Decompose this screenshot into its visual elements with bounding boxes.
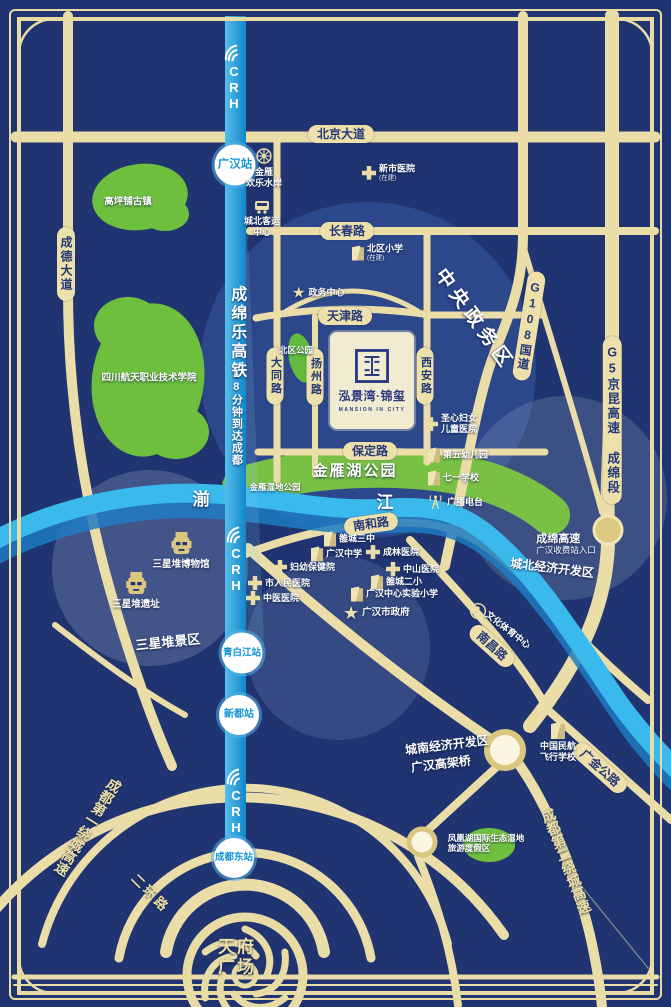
hospital-cross-icon [246, 591, 260, 605]
interchange-a-circle [487, 732, 523, 768]
aerospace-green-shape3 [143, 405, 209, 459]
poi-radio-station: 广播电台 [427, 494, 483, 510]
school-building-icon [324, 532, 336, 547]
school-building-icon [351, 587, 363, 602]
bronze-mask-icon [170, 531, 192, 557]
poi-label: 三星堆遗址 [112, 599, 160, 610]
road-label-tianjin: 天津路 [318, 307, 372, 325]
river-char-jiang: 江 [377, 493, 394, 513]
poi-qiyi-school: 七一学校 [428, 471, 479, 486]
poi-label: 新市医院 [379, 164, 415, 175]
poi-label: 圣心妇女 [441, 413, 477, 424]
antenna-icon [427, 494, 444, 510]
crh-logo-top: CRH [223, 44, 245, 112]
poi-label: 七一学校 [443, 473, 479, 484]
poi-civic-center: ★ 政务中心 [292, 286, 344, 301]
station-chengdudong: 成都东站 [214, 838, 254, 878]
crh-logo-text: CRH [227, 64, 242, 112]
school-building-icon [352, 246, 364, 261]
rail-line-name: 成绵乐高铁 [227, 286, 245, 381]
project-name-en: MANSION IN CITY [339, 407, 406, 413]
poi-label: 中山医院 [403, 564, 439, 575]
hospital-cross-icon [273, 560, 287, 574]
poi-chenglin-hospital: 成林医院 [366, 545, 419, 559]
school-building-icon [551, 722, 565, 739]
bronze-mask-icon [125, 571, 147, 597]
poi-tcm-hospital: 中医医院 [246, 591, 299, 605]
road-label-beijing-avenue: 北京大道 [308, 125, 374, 143]
school-building-icon [428, 448, 440, 463]
seal-logo-icon [354, 348, 390, 384]
crh-waves-icon [225, 768, 247, 786]
poi-label: 广播电台 [447, 497, 483, 508]
star-icon: ★ [292, 286, 305, 301]
project-emblem-card: 泓景湾·锦玺 MANSION IN CITY [330, 332, 414, 429]
map-canvas: 北京大道 长春路 天津路 保定路 南和路 成德大道 大同路 扬州路 西安路 G1… [0, 0, 671, 1007]
poi-label: 飞行学校 [540, 752, 576, 763]
toll-gate-circle [594, 516, 622, 544]
crh-logo-text: CRH [229, 788, 244, 836]
poi-label: 欢乐水岸 [246, 178, 282, 189]
station-qingbaijiang: 青白江站 [222, 633, 263, 674]
aerospace-college-label: 四川航天职业技术学院 [101, 374, 196, 385]
crh-waves-icon [223, 44, 245, 62]
poi-label: 中国民航 [540, 741, 576, 752]
poi-fifth-kindergarten: 第五幼儿园 [428, 448, 488, 463]
hospital-cross-icon [248, 576, 262, 590]
bus-icon [254, 200, 270, 214]
river-char-jian: 湔 [193, 490, 210, 510]
ferris-wheel-icon [255, 147, 273, 165]
frame-corner-tl [19, 19, 54, 54]
hospital-cross-icon [424, 417, 438, 431]
poi-label: 三星堆博物馆 [152, 559, 209, 570]
poi-note: (在建) [367, 255, 403, 263]
phoenix-lake-label: 凤凰湖国际生态湿地 旅游度假区 [448, 834, 525, 854]
gaoping-park-label: 高坪铺古镇 [104, 198, 152, 209]
poi-peoples-hospital: 市人民医院 [248, 576, 310, 590]
poi-label: 广汉市政府 [362, 607, 410, 618]
poi-shengxin-hospital: 圣心妇女 儿童医院 [424, 413, 477, 435]
poi-chengbei-bus-center: 城北客运 中心 [244, 200, 280, 238]
poi-sanxingdui-museum: 三星堆博物馆 [152, 531, 209, 570]
beiqu-park-label: 北区公园 [279, 346, 313, 356]
hospital-cross-icon [362, 166, 376, 180]
toll-entry-label: 成绵高速 广汉收费站入口 [536, 533, 596, 555]
road-label-xian: 西安路 [417, 348, 434, 405]
poi-city-government: ★ 广汉市政府 [343, 604, 410, 622]
tianfu-square-line2: 广场 [218, 957, 256, 977]
poi-maternity-hospital: 妇幼保健院 [273, 560, 335, 574]
tianfu-square-label: 天府 广场 [218, 937, 256, 976]
poi-label: 中医医院 [263, 593, 299, 604]
rail-slogan: 18分钟到达成都 [230, 368, 243, 466]
poi-sanxingdui-site: 三星堆遗址 [112, 571, 160, 610]
poi-beiqu-primary-school: 北区小学 (在建) [352, 244, 403, 263]
toll-entry-line2: 广汉收费站入口 [536, 545, 596, 555]
poi-label: 北区小学 [367, 244, 403, 255]
road-label-changchun: 长春路 [320, 222, 374, 240]
poi-label: 金雁 [246, 167, 282, 178]
poi-label: 成林医院 [383, 547, 419, 558]
crh-logo-middle: CRH [225, 526, 247, 594]
poi-aviation-school: 中国民航 飞行学校 [540, 722, 576, 763]
road-label-g5: G5京昆高速 成绵段 [603, 336, 622, 504]
poi-label: 中心 [244, 227, 280, 238]
frame-corner-tr [617, 19, 652, 54]
poi-label: 雒城三中 [339, 534, 375, 545]
poi-label: 妇幼保健院 [290, 562, 335, 573]
crh-logo-bottom: CRH [225, 768, 247, 836]
crh-waves-icon [225, 526, 247, 544]
phoenix-lake-line2: 旅游度假区 [448, 844, 525, 854]
poi-label: 广汉中心实验小学 [366, 589, 438, 600]
road-a-to-b [428, 762, 502, 830]
interchange-b-circle [409, 829, 435, 855]
project-name: 泓景湾·锦玺 [339, 387, 406, 404]
road-label-yangzhou: 扬州路 [307, 349, 324, 406]
poi-label: 广汉中学 [326, 549, 362, 560]
road-label-baoding: 保定路 [343, 442, 397, 460]
toll-entry-line1: 成绵高速 [536, 533, 596, 546]
poi-note: (在建) [379, 175, 415, 183]
road-label-chengde-avenue: 成德大道 [57, 227, 75, 301]
hospital-cross-icon [366, 545, 380, 559]
poi-xinshi-hospital: 新市医院 (在建) [362, 164, 415, 183]
poi-label: 第五幼儿园 [443, 450, 488, 461]
poi-label: 政务中心 [308, 288, 344, 299]
road-second-ring-expwy [516, 760, 602, 1007]
star-icon: ★ [343, 604, 359, 622]
jinyan-wetland-label: 金雁湿地公园 [249, 483, 300, 493]
crh-logo-text: CRH [229, 546, 244, 594]
poi-label: 市人民医院 [265, 578, 310, 589]
station-xindu: 新都站 [219, 695, 259, 735]
school-building-icon [428, 471, 440, 486]
tianfu-square-line1: 天府 [218, 937, 256, 957]
poi-jinyan-water-park: 金雁 欢乐水岸 [246, 147, 282, 189]
poi-label: 儿童医院 [441, 424, 477, 435]
road-label-datong: 大同路 [267, 348, 284, 405]
jinyan-lake-park-label: 金雁湖公园 [312, 462, 397, 479]
aerospace-green-shape2 [94, 297, 162, 355]
poi-label: 城北客运 [244, 216, 280, 227]
poi-experimental-primary: 广汉中心实验小学 [351, 587, 438, 602]
